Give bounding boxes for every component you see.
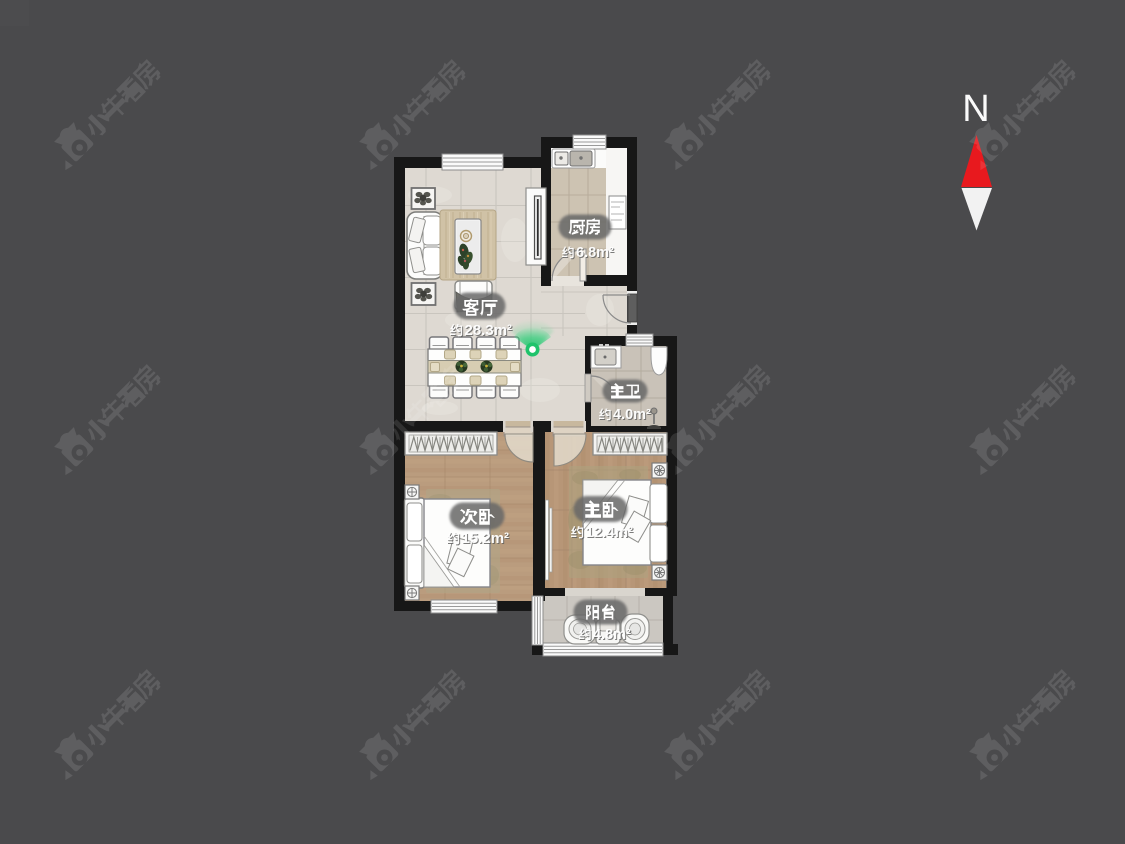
svg-text:4.8m²: 4.8m² — [593, 627, 631, 643]
svg-text:4.0m²: 4.0m² — [613, 407, 651, 423]
svg-text:6.8m²: 6.8m² — [576, 245, 614, 261]
svg-text:15.2m²: 15.2m² — [462, 530, 510, 547]
svg-text:N: N — [962, 88, 989, 130]
svg-text:28.3m²: 28.3m² — [465, 322, 513, 339]
svg-text:12.4m²: 12.4m² — [586, 524, 634, 541]
